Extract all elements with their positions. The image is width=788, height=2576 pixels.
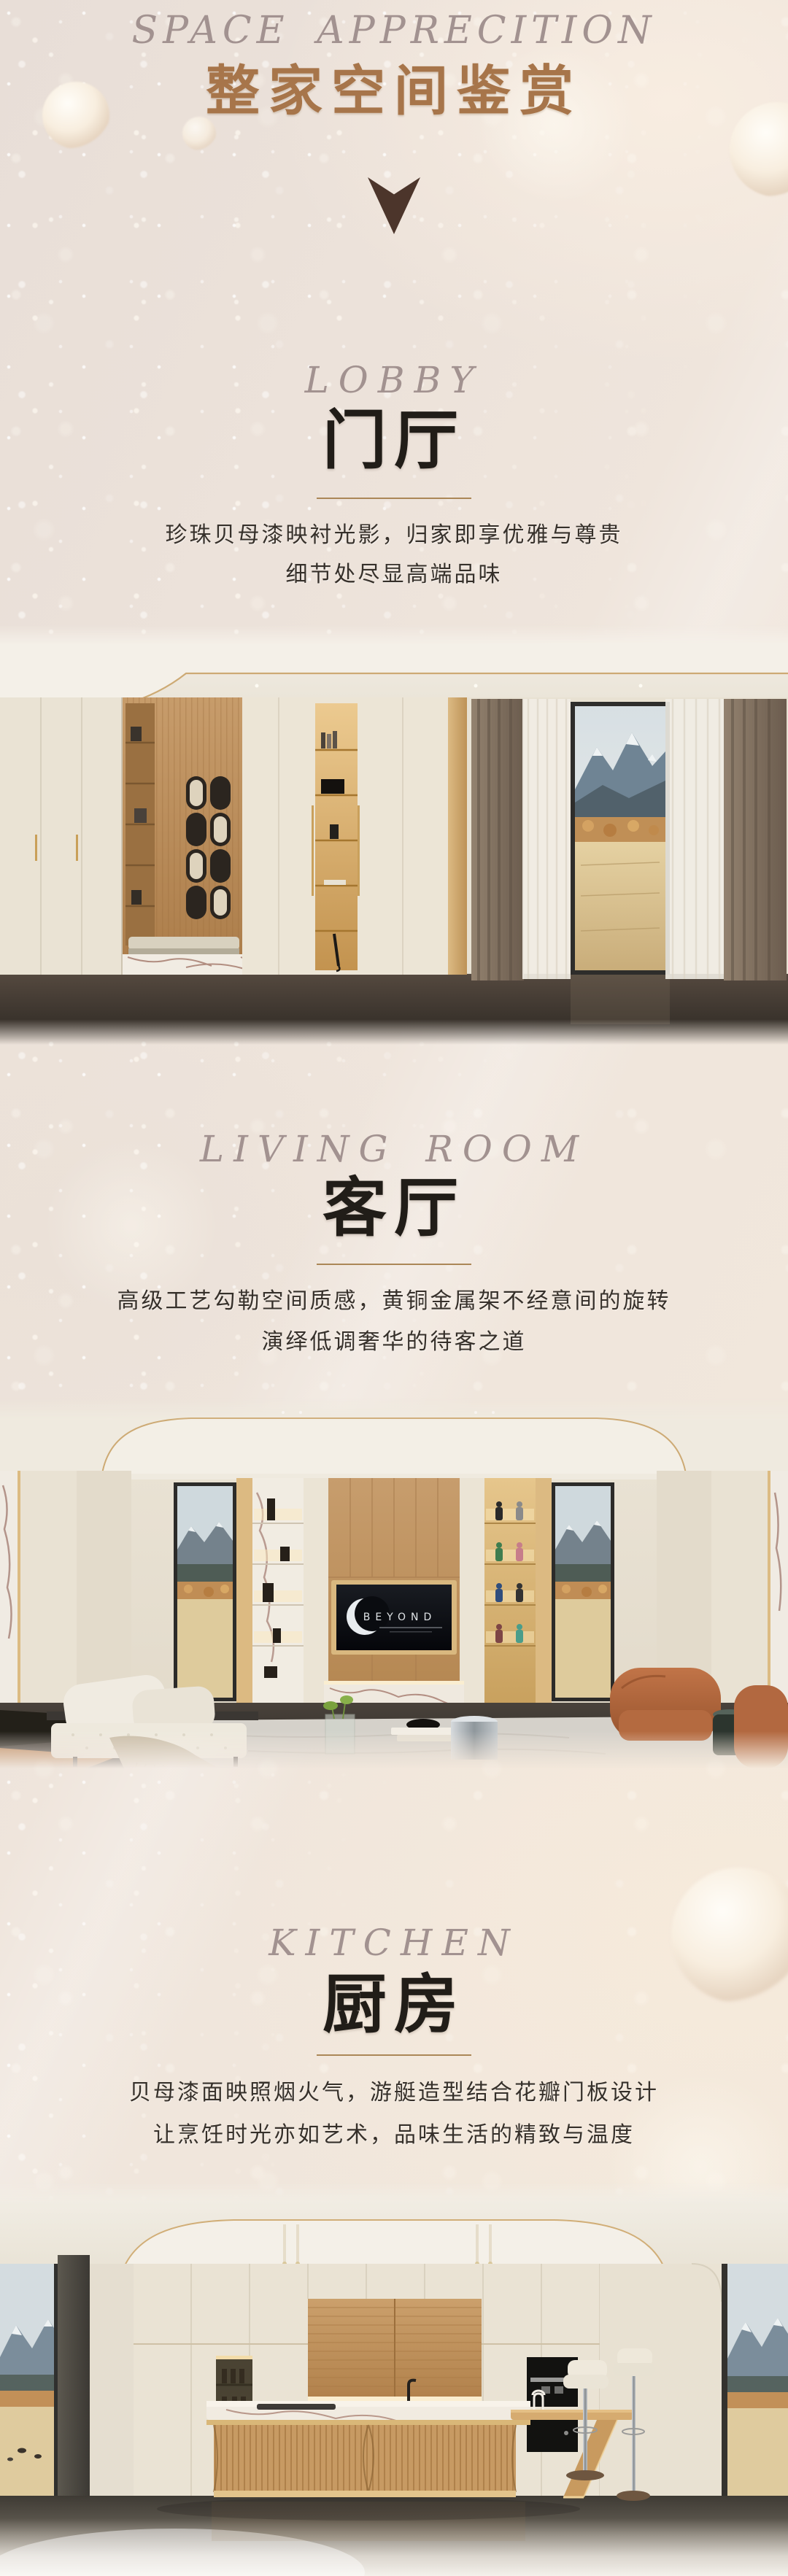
lobby-window [571, 702, 670, 975]
lobby-wardrobe-left [0, 697, 123, 975]
lobby-desc-line1: 珍珠贝母漆映衬光影，归家即享优雅与尊贵 [0, 517, 788, 549]
lobby-wood-niche [123, 697, 242, 975]
gold-divider [317, 498, 471, 499]
living-room-scene: BEYOND [0, 1398, 788, 1768]
marble-display-niche [252, 1478, 304, 1714]
wood-cabinet [308, 2299, 482, 2397]
gold-divider [317, 2054, 471, 2056]
kitchen-scene [0, 2182, 788, 2576]
page-title: 整家空间鉴赏 [0, 63, 788, 121]
kitchen-window-right [722, 2264, 788, 2518]
curtain-right [724, 699, 787, 980]
kitchen-title: 厨房 [0, 1970, 788, 2039]
living-room-desc-line2: 演绎低调奢华的待客之道 [0, 1323, 788, 1355]
kitchen-subtitle-en: KITCHEN [0, 1922, 788, 1964]
header-subtitle-en: SPACE APPRECITION [0, 9, 788, 53]
living-room-photo: BEYOND [0, 1398, 788, 1768]
lobby-room [0, 624, 788, 1045]
lobby-photo [0, 624, 788, 1045]
lobby-window-wall [467, 697, 788, 980]
sheer-left [522, 699, 571, 979]
marble-panel-left [0, 1471, 20, 1714]
living-room-desc-line1: 高级工艺勾勒空间质感，黄铜金属架不经意间的旋转 [0, 1283, 788, 1315]
living-window-left [174, 1482, 236, 1701]
living-room-title: 客厅 [0, 1173, 788, 1242]
kitchen-desc-line2: 让烹饪时光亦如艺术，品味生活的精致与温度 [0, 2116, 788, 2148]
lobby-cabinets-center [242, 697, 467, 975]
sheer-right [665, 699, 727, 979]
space-appreciation-poster: SPACE APPRECITION 整家空间鉴赏 LOBBY 门厅 珍珠贝母漆映… [0, 0, 788, 2576]
living-room-subtitle-en: LIVING ROOM [0, 1128, 788, 1170]
kitchen-photo [0, 2182, 788, 2576]
curtain-left [471, 699, 524, 980]
lobby-desc-line2: 细节处尽显高端品味 [0, 556, 788, 588]
lit-display-niche [315, 703, 358, 971]
living-window-right [552, 1482, 614, 1701]
kitchen-window-left [0, 2264, 58, 2512]
tv-screen: BEYOND [331, 1580, 457, 1655]
gold-display-cabinet [484, 1478, 536, 1714]
gold-divider [317, 1264, 471, 1265]
lobby-subtitle-en: LOBBY [0, 359, 788, 401]
lobby-title: 门厅 [0, 406, 788, 475]
down-arrow-icon [368, 177, 420, 234]
tv-wall: BEYOND [304, 1478, 484, 1714]
tv-text: BEYOND [363, 1612, 437, 1623]
kitchen-desc-line1: 贝母漆面映照烟火气，游艇造型结合花瓣门板设计 [0, 2074, 788, 2106]
marble-panel-right [768, 1471, 788, 1714]
